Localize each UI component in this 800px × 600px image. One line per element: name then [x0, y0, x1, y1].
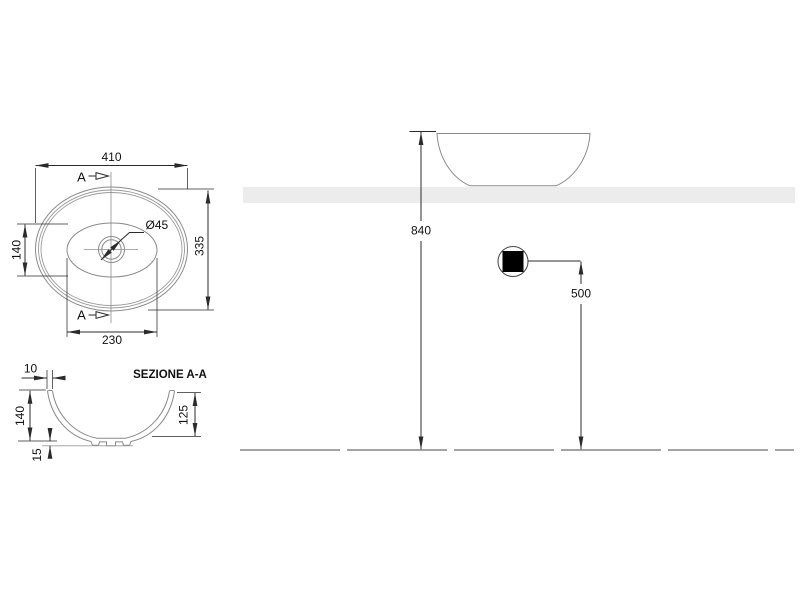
dim-335-label: 335	[193, 236, 207, 256]
dim-140-section-label: 140	[13, 406, 27, 426]
section-marker-top: A	[77, 170, 108, 185]
dim-230-label: 230	[102, 333, 122, 347]
dim-840-label: 840	[411, 224, 431, 238]
section-view: SEZIONE A-A 10 140 15	[13, 362, 207, 462]
elevation-view: 840 500	[240, 132, 795, 451]
bowl-elevation-outline	[437, 134, 590, 186]
section-arrow-bottom-icon	[96, 312, 109, 319]
dimension-840: 840	[410, 132, 437, 450]
section-marker-bottom-label: A	[77, 308, 86, 323]
bowl-outer-profile	[48, 391, 175, 446]
dim-125-label: 125	[177, 405, 191, 425]
section-arrow-top-icon	[96, 173, 109, 180]
dim-10-label: 10	[24, 362, 38, 376]
technical-drawing: A A 410 335 140	[0, 0, 800, 600]
dim-410-label: 410	[101, 150, 121, 164]
dimension-10: 10	[22, 362, 65, 390]
section-marker-top-label: A	[77, 170, 86, 185]
leader-elbow	[121, 233, 144, 241]
countertop	[243, 187, 795, 203]
dimension-15: 15	[30, 429, 50, 462]
dim-500-label: 500	[571, 287, 591, 301]
basin-bottom-ellipse	[67, 223, 157, 277]
dimension-500: 500	[571, 262, 591, 450]
dimension-125: 125	[152, 393, 201, 437]
drain-outlet-square-icon	[503, 251, 524, 272]
section-title: SEZIONE A-A	[133, 369, 207, 381]
dim-15-label: 15	[30, 448, 44, 462]
dim-140-plan-label: 140	[10, 240, 24, 260]
plan-view: A A 410 335 140	[10, 150, 215, 347]
dim-drain-label: Ø45	[146, 218, 169, 232]
drawing-canvas: A A 410 335 140	[0, 0, 800, 600]
